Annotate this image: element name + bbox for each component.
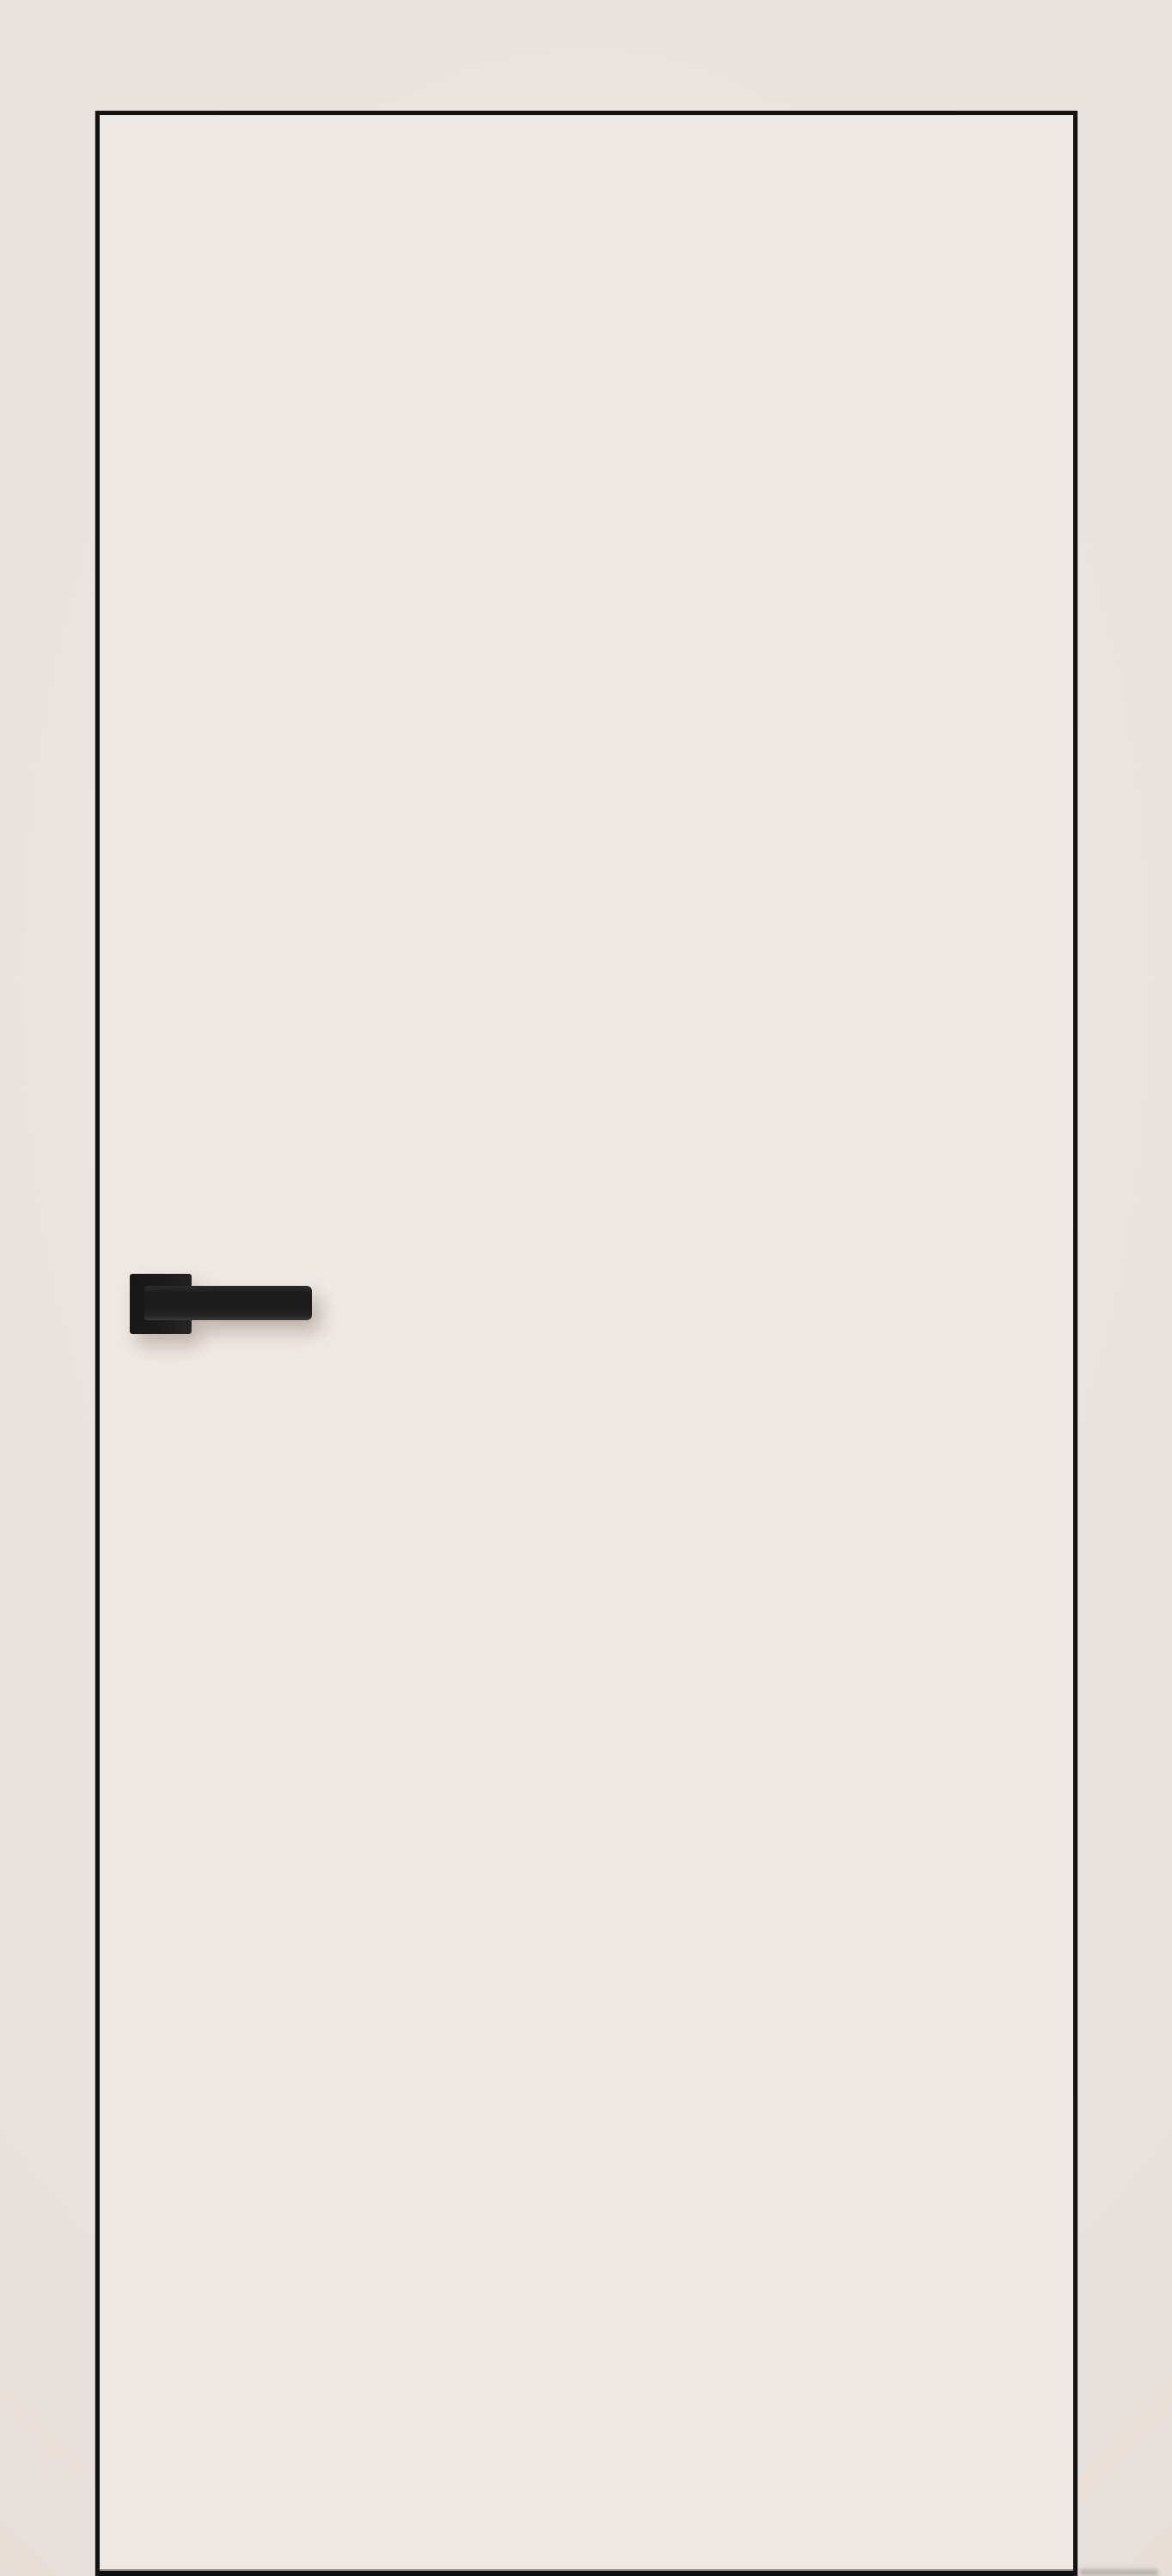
door-bottom-gap-shadow [100, 2569, 1073, 2576]
floor-shadow [1079, 2569, 1158, 2576]
door-leaf [95, 111, 1077, 2576]
product-photo-backdrop [0, 0, 1172, 2576]
door-handle-lever [144, 1286, 312, 1320]
